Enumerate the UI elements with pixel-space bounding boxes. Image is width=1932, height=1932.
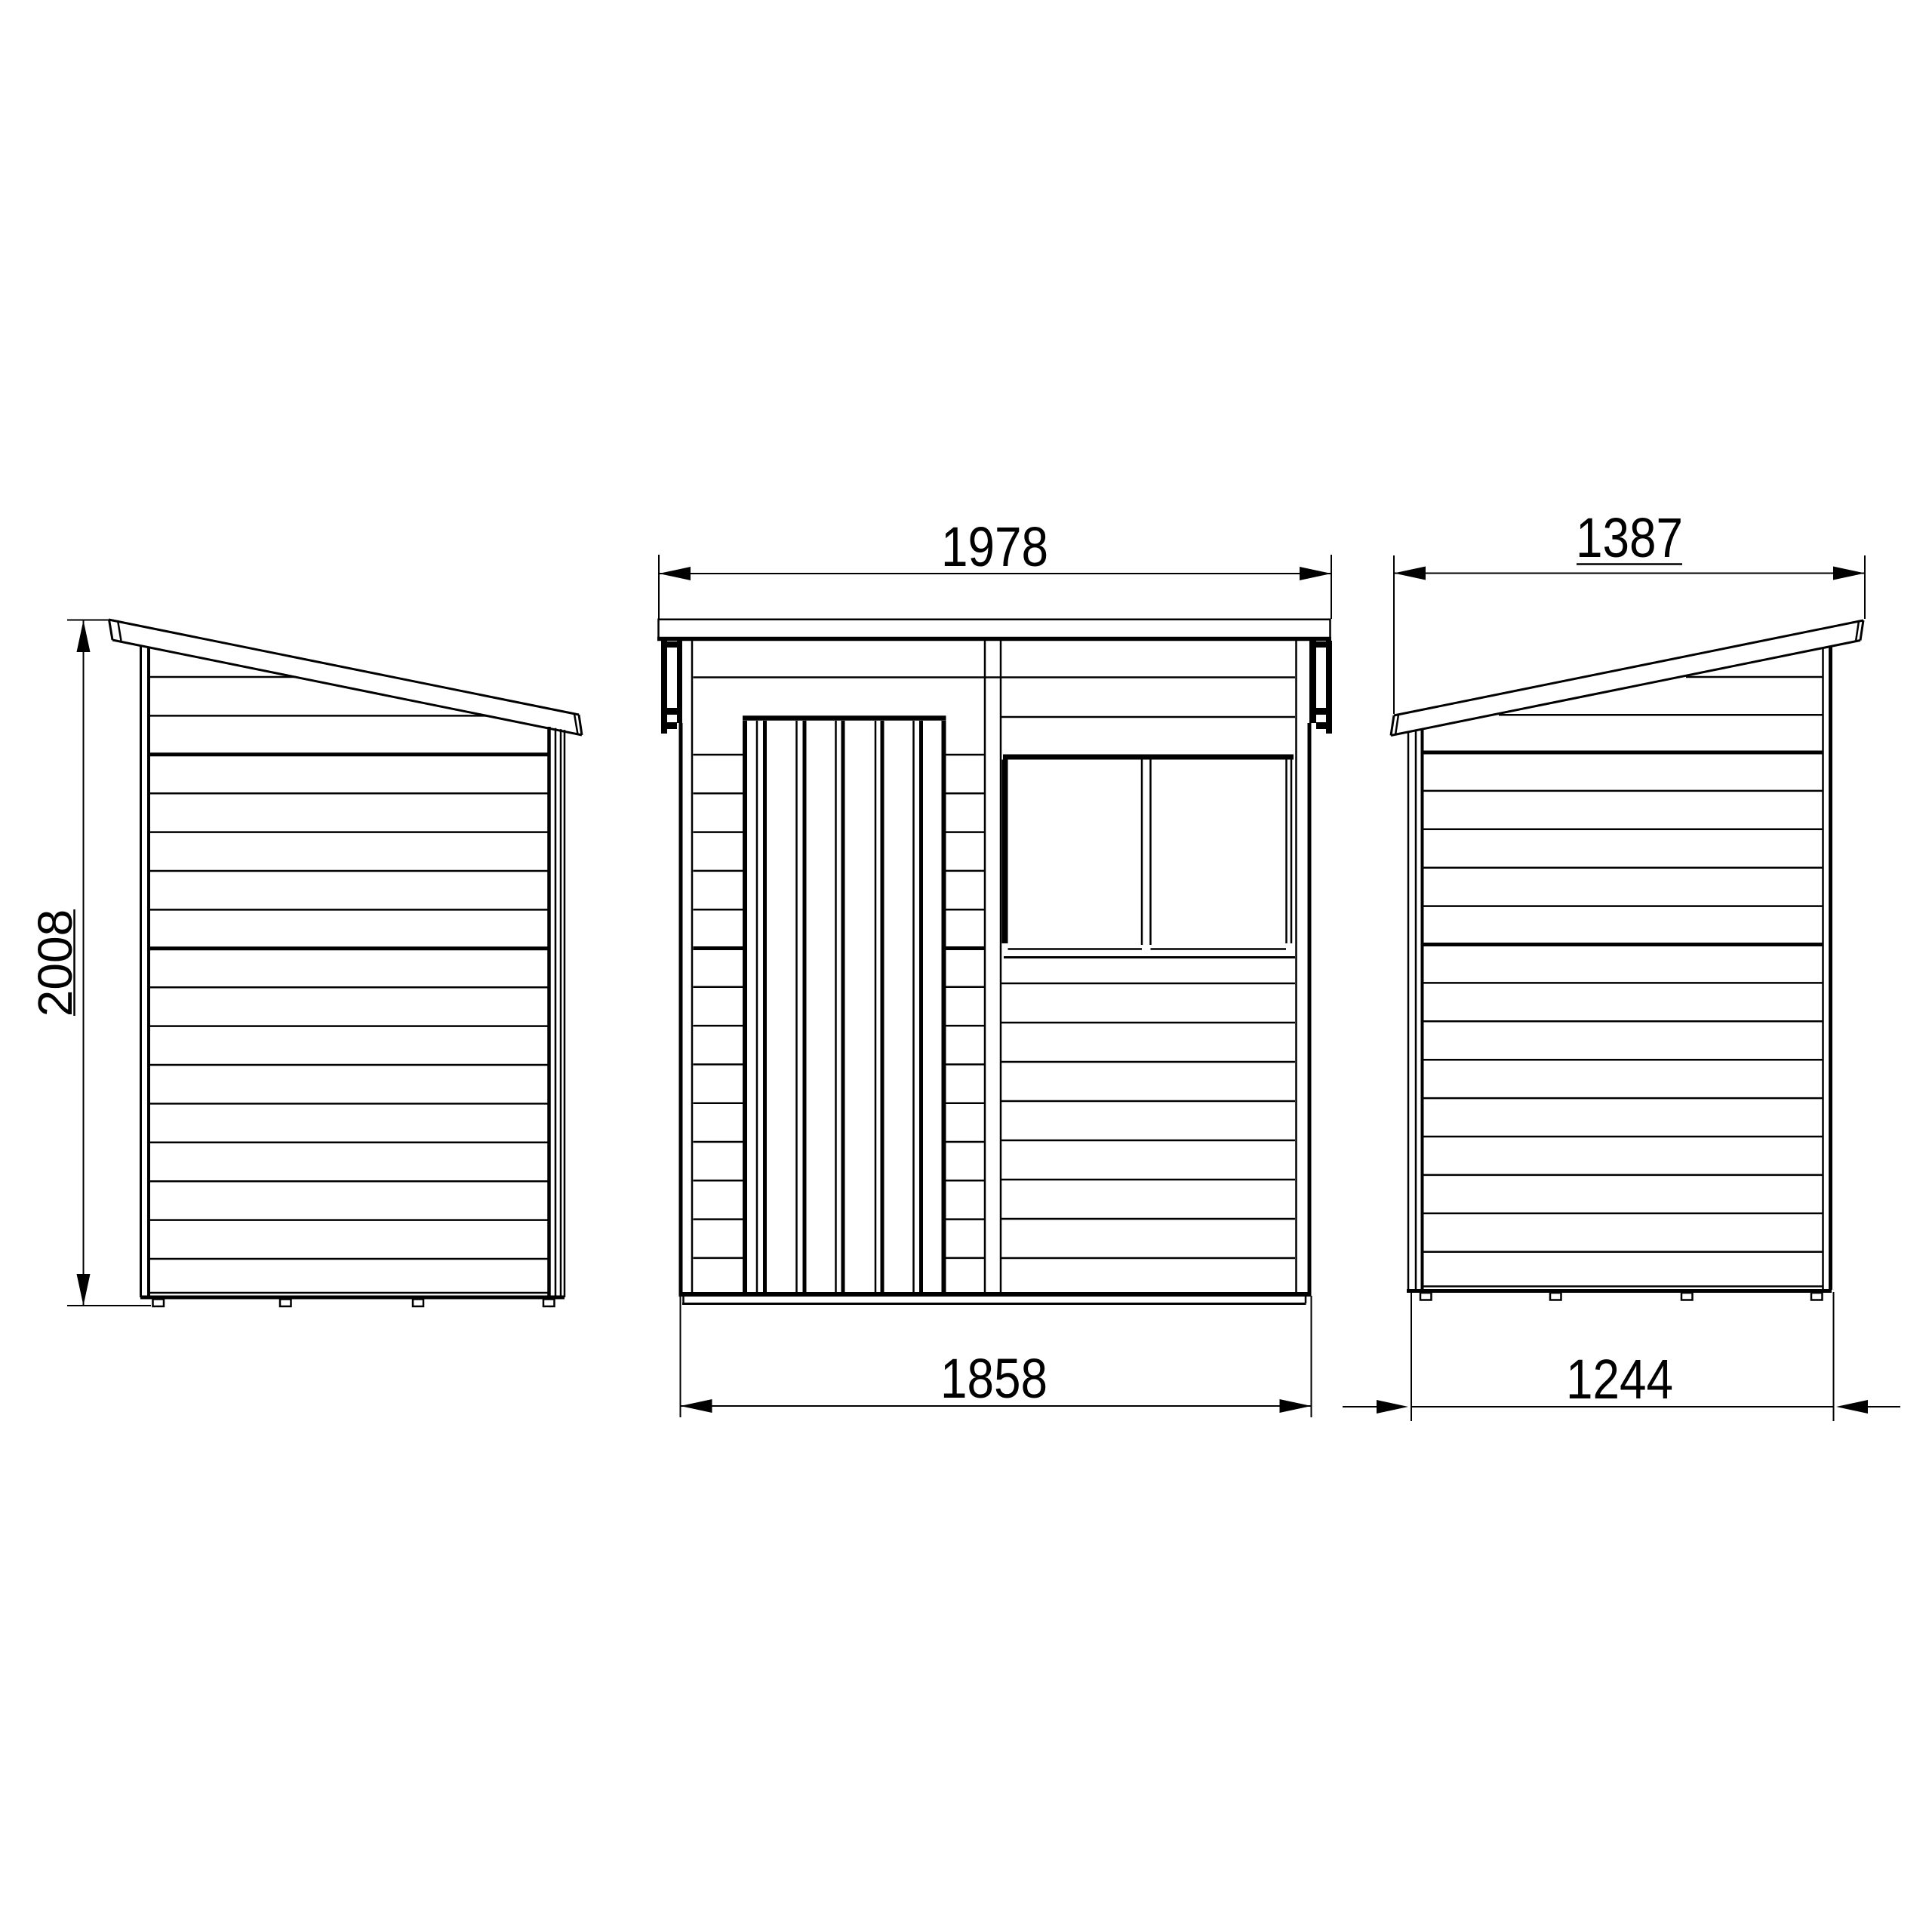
svg-text:1858: 1858	[940, 1347, 1048, 1410]
svg-text:1244: 1244	[1566, 1348, 1673, 1411]
svg-text:1387: 1387	[1576, 506, 1683, 569]
svg-text:2008: 2008	[28, 909, 82, 1017]
svg-text:1978: 1978	[941, 515, 1048, 578]
